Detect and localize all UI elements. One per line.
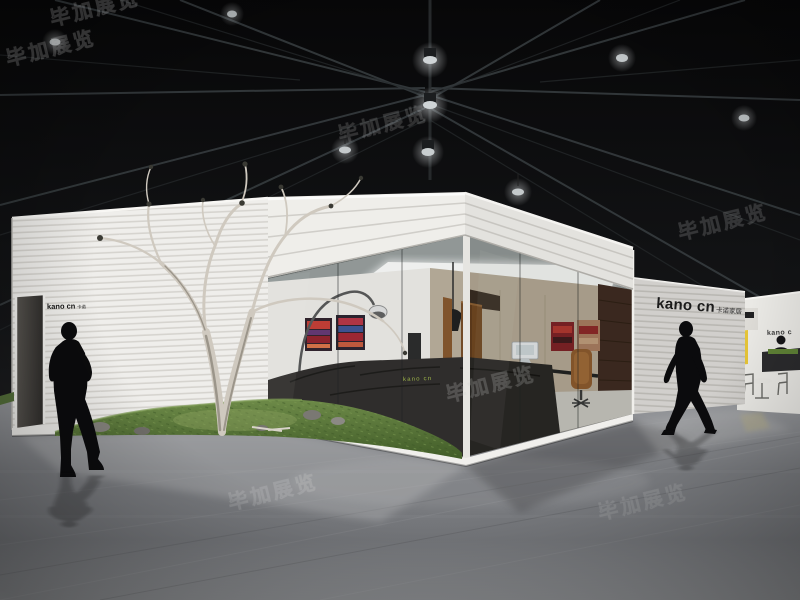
booth-render: kano c kano cn 卡诺家居 kano cn <box>0 0 800 600</box>
vignette-overlay <box>0 0 800 600</box>
render-canvas: kano c kano cn 卡诺家居 kano cn <box>0 0 800 600</box>
